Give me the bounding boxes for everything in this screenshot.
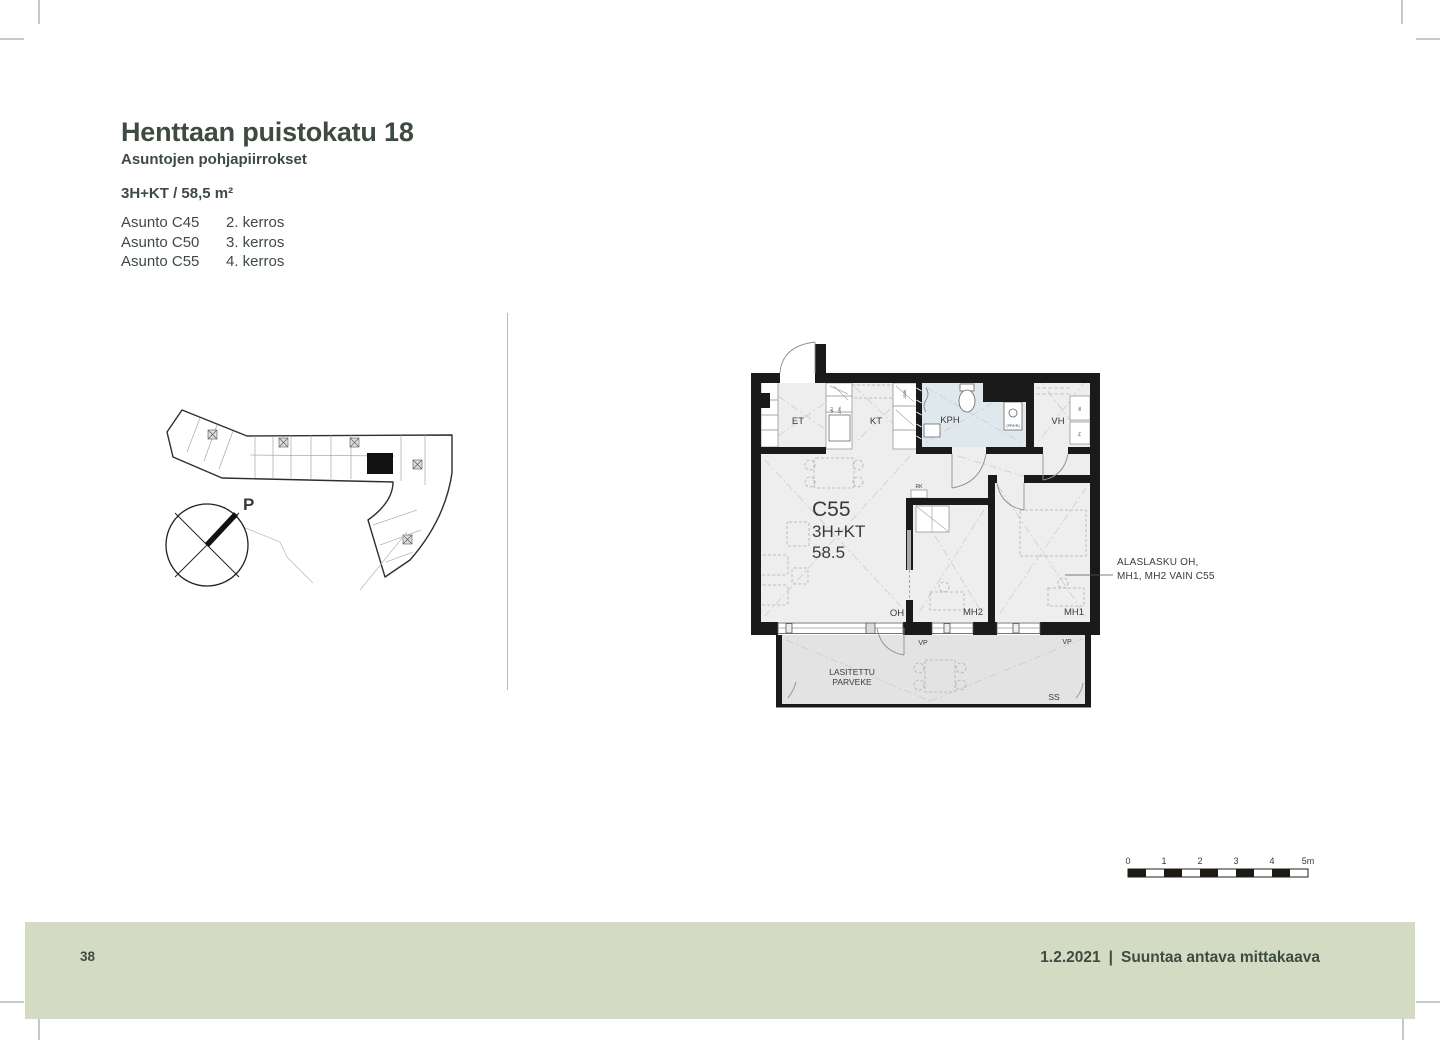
scale-bar-ticks: 0 1 2 3 4 5m [1125,856,1314,866]
svg-text:4: 4 [1269,856,1274,866]
annotation-line1: ALASLASKU OH, [1117,556,1215,570]
crop-mark-top-right-v [1401,0,1403,24]
entry-shaft [761,393,770,408]
room-label-oh: OH [890,608,904,619]
room-label-kt: KT [870,416,882,427]
balcony-label-line1: LASITETTU [829,667,875,677]
room-label-et: ET [792,416,804,427]
building-partitions [187,418,425,562]
annotation: ALASLASKU OH, MH1, MH2 VAIN C55 [1117,556,1215,584]
apartment-floor: 4. kerros [226,252,284,272]
apartment-floor: 2. kerros [226,213,284,233]
footer-note: Suuntaa antava mittakaava [1121,949,1320,967]
crop-mark-bottom-right-h [1416,1001,1440,1003]
scale-bar-segments [1128,869,1308,877]
building-overview-plan: P [155,390,475,600]
label-ss: SS [1048,692,1060,702]
label-mu: MU [830,407,834,413]
crop-mark-top-left-v [38,0,40,24]
label-jaak: JÄÄK [903,389,907,399]
room-label-kph: KPH [940,415,960,426]
svg-text:1: 1 [1161,856,1166,866]
room-label-mh2: MH2 [963,607,983,618]
header: Henttaan puistokatu 18 Asuntojen pohjapi… [121,116,414,272]
panel-divider-line [507,313,508,690]
apartment-type: 3H+KT / 58,5 m² [121,185,414,202]
label-sk: SK [1078,406,1082,411]
apartment-unit: Asunto C55 [121,252,226,272]
svg-text:5m: 5m [1302,856,1315,866]
apartment-list-item: Asunto C45 2. kerros [121,213,414,233]
label-vp-1: VP [918,640,928,647]
balcony-label-line2: PARVEKE [832,677,872,687]
compass-label: P [243,495,254,514]
footer-separator: | [1109,949,1113,967]
room-label-mh1: MH1 [1064,607,1084,618]
stair-cores [208,430,422,544]
label-vp-2: VP [1062,639,1072,646]
footer-date: 1.2.2021 [1040,949,1100,967]
svg-text:2: 2 [1197,856,1202,866]
footer-right: 1.2.2021 | Suuntaa antava mittakaava [1040,949,1320,967]
label-rk: RK [916,484,924,490]
apartment-floor: 3. kerros [226,233,284,253]
room-label-vh: VH [1051,416,1064,427]
apartment-list-item: Asunto C55 4. kerros [121,252,414,272]
apartment-unit: Asunto C45 [121,213,226,233]
crop-mark-top-left-h [0,38,24,40]
unit-area: 58.5 [812,543,845,562]
sliding-door-leaf [907,530,911,570]
label-ppkr: (PP/KR) [1006,424,1019,428]
site-boundary-lines [243,527,407,590]
apartment-unit: Asunto C50 [121,233,226,253]
unit-id: C55 [812,498,851,521]
apartment-list-item: Asunto C50 3. kerros [121,233,414,253]
unit-type: 3H+KT [812,522,865,541]
apartment-list: Asunto C45 2. kerros Asunto C50 3. kerro… [121,213,414,272]
floor-plan: C55 3H+KT 58.5 ET KT KPH VH OH MH2 MH1 R… [730,330,1130,730]
page-subtitle: Asuntojen pohjapiirrokset [121,151,414,168]
page-title: Henttaan puistokatu 18 [121,116,414,148]
scale-bar: 0 1 2 3 4 5m [1124,855,1320,883]
svg-text:0: 0 [1125,856,1130,866]
footer-bar: 38 1.2.2021 | Suuntaa antava mittakaava [25,922,1415,1019]
label-apk: APK [838,406,842,414]
page-number: 38 [80,949,95,964]
crop-mark-bottom-left-h [0,1001,24,1003]
unit-location-highlight [367,453,393,474]
svg-text:3: 3 [1233,856,1238,866]
annotation-line2: MH1, MH2 VAIN C55 [1117,570,1215,584]
compass-icon: P [166,495,254,586]
crop-mark-top-right-h [1416,38,1440,40]
label-py: PY [1078,431,1082,436]
